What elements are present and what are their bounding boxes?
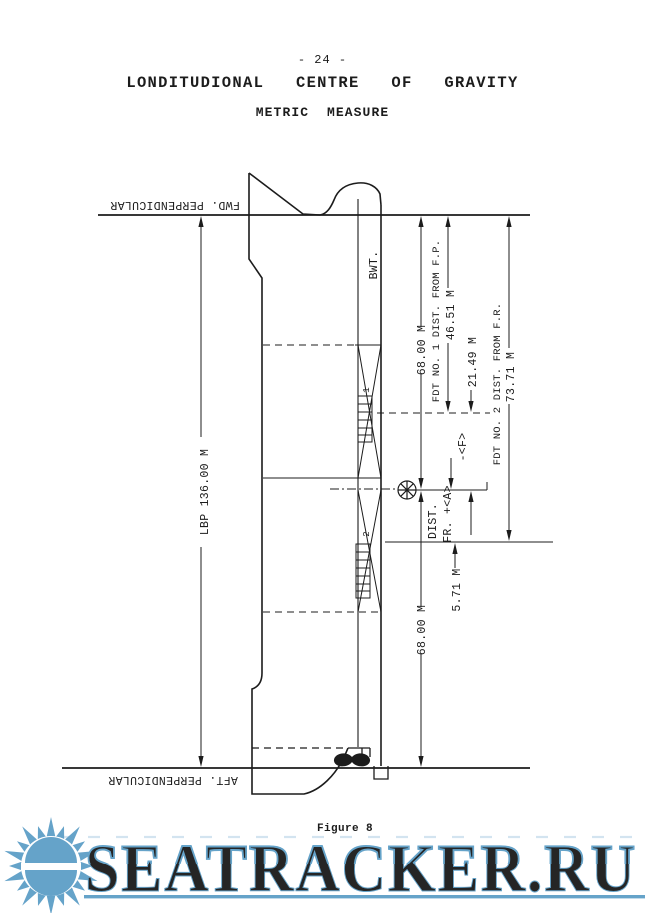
deck-profile	[249, 173, 348, 794]
bow-profile	[249, 173, 381, 215]
fdt2-label: FDT NO. 2 DIST. FROM F.R.	[492, 303, 504, 466]
dim-68-fwd-label: 68.00 M	[416, 325, 429, 375]
ship-hull-outline	[249, 173, 381, 794]
reference-lines	[62, 215, 530, 768]
cg-spokes	[398, 481, 416, 499]
sun-logo	[4, 817, 97, 913]
tank2-number: 2	[362, 531, 372, 536]
bwt-label: BWT.	[368, 251, 381, 280]
fdt1-label: FDT NO. 1 DIST. FROM F.P.	[431, 240, 443, 403]
dim-2149-label: 21.49 M	[467, 337, 480, 387]
tank-structure	[263, 345, 381, 612]
lbp-label: LBP 136.00 M	[199, 449, 212, 535]
dimension-lines	[198, 216, 553, 767]
dist-label-line2: FR. +<A>	[442, 485, 455, 543]
document-page: - 24 - LONDITUDIONAL CENTRE OF GRAVITY M…	[0, 0, 645, 913]
stern-details	[252, 748, 388, 779]
tank1-number: 1	[362, 387, 372, 392]
figure-caption: Figure 8	[317, 823, 373, 835]
dim-68-aft-label: 68.00 M	[416, 605, 429, 655]
dim-7371-label: 73.71 M	[505, 352, 518, 402]
dim-571-arrow	[452, 543, 457, 554]
fwd-sign-label: -<F>	[457, 433, 470, 462]
cg-symbol	[330, 481, 487, 499]
dist-label-line1: DIST.	[427, 503, 440, 539]
propeller-icon	[334, 753, 370, 766]
tank1-hatch	[358, 396, 372, 442]
dim-571-label: 5.71 M	[451, 568, 464, 611]
fwd-perpendicular-label: FWD. PERPENDICULAR	[110, 198, 240, 211]
watermark-underline	[84, 895, 645, 898]
sun-horizon-gap	[21, 863, 81, 870]
lcg-diagram: SEATRACKER.RU SEATRACKER.RU FWD. PERPEND…	[0, 0, 645, 913]
dim-4651-label: 46.51 M	[445, 290, 458, 340]
aft-perpendicular-label: AFT. PERPENDICULAR	[108, 773, 238, 786]
